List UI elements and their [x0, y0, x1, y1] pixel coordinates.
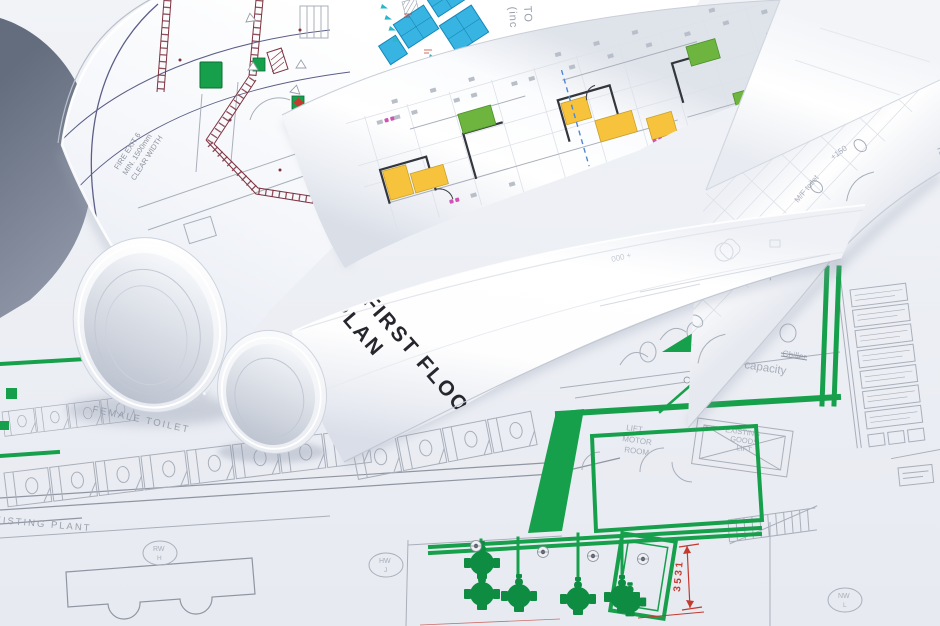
svg-text:(inc: (inc [506, 6, 519, 28]
svg-text:L: L [843, 602, 847, 609]
svg-text:NW: NW [838, 593, 850, 600]
svg-text:J: J [384, 567, 387, 574]
blueprint-photo: FEMALE TOILET EXISTING PLANT LIFT MOTOR … [0, 0, 940, 626]
svg-text:TO: TO [521, 6, 534, 24]
svg-text:RW: RW [153, 546, 165, 553]
svg-text:HW: HW [379, 558, 391, 565]
blueprint-scene: FEMALE TOILET EXISTING PLANT LIFT MOTOR … [0, 0, 940, 626]
svg-text:H: H [157, 555, 162, 562]
